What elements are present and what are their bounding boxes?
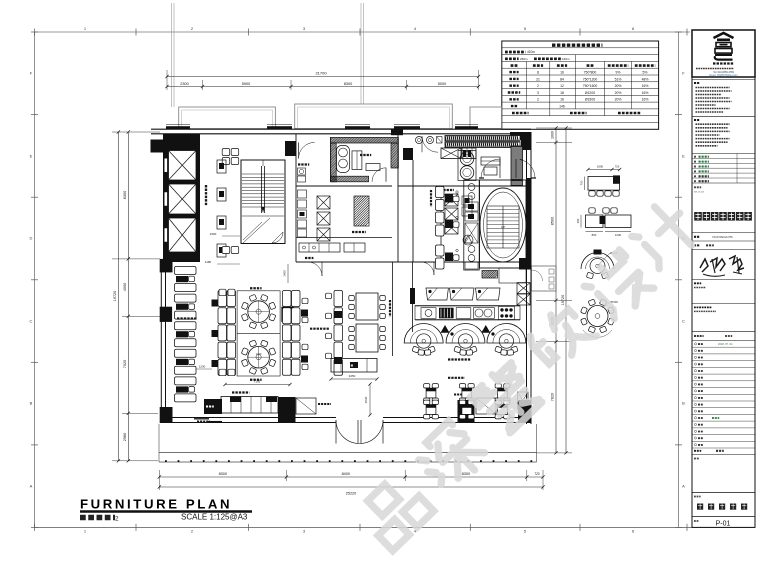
- svg-text:16: 16: [560, 98, 564, 102]
- svg-text:2: 2: [537, 98, 539, 102]
- svg-text:19720: 19720: [113, 291, 117, 302]
- svg-text:B: B: [682, 401, 685, 406]
- svg-text:410m: 410m: [527, 50, 535, 54]
- svg-text:160m: 160m: [562, 57, 570, 61]
- svg-text:XXAXXPEGIA4756: XXAXXPEGIA4756: [712, 236, 733, 239]
- svg-text:D: D: [30, 236, 33, 241]
- svg-text:UP: UP: [501, 225, 505, 229]
- svg-text:SH-JT-001: SH-JT-001: [694, 192, 705, 194]
- svg-text:2980: 2980: [123, 433, 127, 441]
- svg-text:C: C: [682, 319, 685, 324]
- svg-text:1600: 1600: [597, 165, 604, 169]
- svg-text:2018. 07. 04: 2018. 07. 04: [718, 342, 733, 346]
- svg-text:8300: 8300: [219, 472, 227, 476]
- svg-text:B: B: [30, 401, 33, 406]
- svg-text:84: 84: [560, 77, 564, 81]
- svg-text:5900: 5900: [242, 82, 250, 86]
- svg-text:1000: 1000: [551, 131, 555, 139]
- svg-text:1180: 1180: [205, 260, 212, 264]
- svg-text:720: 720: [534, 472, 540, 476]
- svg-text:C: C: [30, 319, 33, 324]
- svg-text:20%: 20%: [615, 84, 622, 88]
- svg-text:750*1200: 750*1200: [583, 77, 598, 81]
- svg-text:19720: 19720: [561, 295, 565, 306]
- svg-text:5000: 5000: [438, 82, 446, 86]
- svg-text:18: 18: [560, 91, 564, 95]
- svg-text:1200: 1200: [615, 233, 622, 237]
- svg-text:750*800: 750*800: [584, 71, 597, 75]
- svg-text:5%: 5%: [643, 71, 648, 75]
- svg-text:1200: 1200: [256, 352, 262, 356]
- svg-text:20%: 20%: [615, 91, 622, 95]
- svg-text:250m: 250m: [520, 57, 528, 61]
- svg-text:P-01: P-01: [716, 521, 731, 528]
- svg-text:25220: 25220: [346, 492, 357, 496]
- svg-text:720: 720: [615, 165, 620, 169]
- svg-text:A: A: [30, 484, 33, 489]
- svg-text:750*1600: 750*1600: [583, 84, 598, 88]
- svg-text:8300: 8300: [123, 191, 127, 199]
- svg-text:3: 3: [537, 91, 539, 95]
- svg-text:Ø1200: Ø1200: [585, 91, 595, 95]
- svg-text:21: 21: [536, 77, 540, 81]
- svg-text:2300: 2300: [180, 82, 188, 86]
- svg-text:E: E: [682, 154, 685, 159]
- svg-text:1200: 1200: [199, 365, 206, 369]
- svg-text:16%: 16%: [642, 98, 649, 102]
- svg-text:16%: 16%: [642, 84, 649, 88]
- svg-text:4000: 4000: [123, 283, 127, 291]
- svg-text:750: 750: [580, 180, 584, 185]
- svg-text:7020: 7020: [123, 360, 127, 368]
- svg-text:Ø1500: Ø1500: [585, 98, 595, 102]
- svg-text:16%: 16%: [642, 91, 649, 95]
- svg-text:E: E: [30, 154, 33, 159]
- svg-text:250: 250: [576, 218, 580, 223]
- svg-text:2: 2: [537, 84, 539, 88]
- svg-text:2530: 2530: [364, 396, 368, 403]
- svg-text:9%: 9%: [616, 71, 621, 75]
- svg-text:800: 800: [592, 233, 597, 237]
- svg-text:2: 2: [115, 516, 119, 523]
- svg-text:7195: 7195: [254, 380, 261, 384]
- svg-text:8300: 8300: [344, 82, 352, 86]
- svg-text:8400: 8400: [342, 472, 350, 476]
- svg-text:8: 8: [537, 71, 539, 75]
- svg-text:20%: 20%: [615, 98, 622, 102]
- svg-text:146: 146: [559, 104, 565, 108]
- svg-text:A: A: [682, 484, 685, 489]
- svg-text:FURNITURE PLAN: FURNITURE PLAN: [80, 497, 232, 512]
- svg-text:3250: 3250: [349, 374, 356, 378]
- svg-text:16: 16: [560, 71, 564, 75]
- svg-text:21700: 21700: [315, 71, 327, 76]
- svg-text:1500: 1500: [210, 232, 217, 236]
- svg-text:1400: 1400: [283, 270, 287, 277]
- svg-text:8500: 8500: [551, 217, 555, 225]
- svg-text:48%: 48%: [642, 77, 649, 81]
- svg-text:51%: 51%: [615, 77, 622, 81]
- svg-text:SCALE 1:125@A3: SCALE 1:125@A3: [181, 513, 248, 522]
- svg-text:8300: 8300: [462, 472, 470, 476]
- svg-text:12: 12: [560, 84, 564, 88]
- svg-text:Email: 13925578@qq.com: Email: 13925578@qq.com: [709, 74, 737, 77]
- svg-text:7820: 7820: [551, 393, 555, 401]
